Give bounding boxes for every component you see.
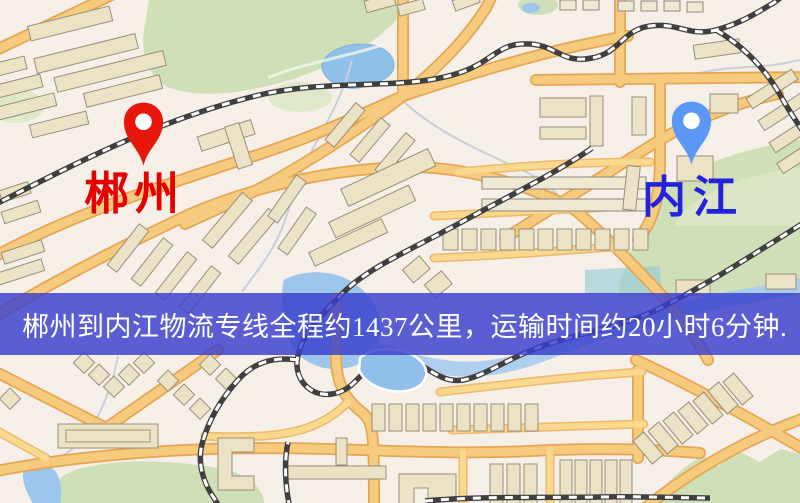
origin-pin-hole [135, 113, 152, 130]
destination-pin-icon[interactable] [668, 100, 715, 167]
origin-pin-body [124, 103, 163, 166]
route-summary-text: 郴州到内江物流专线全程约1437公里，运输时间约20小时6分钟. [22, 305, 787, 344]
destination-city-label: 内江 [642, 176, 744, 220]
route-info-banner: 郴州到内江物流专线全程约1437公里，运输时间约20小时6分钟. [0, 293, 800, 355]
map-canvas [0, 0, 800, 503]
map-screenshot: 郴州 内江 郴州到内江物流专线全程约1437公里，运输时间约20小时6分钟. [0, 0, 800, 503]
destination-pin-body [672, 102, 711, 165]
origin-city-label: 郴州 [84, 172, 184, 217]
destination-pin-hole [683, 112, 700, 129]
origin-pin-icon[interactable] [120, 101, 167, 168]
